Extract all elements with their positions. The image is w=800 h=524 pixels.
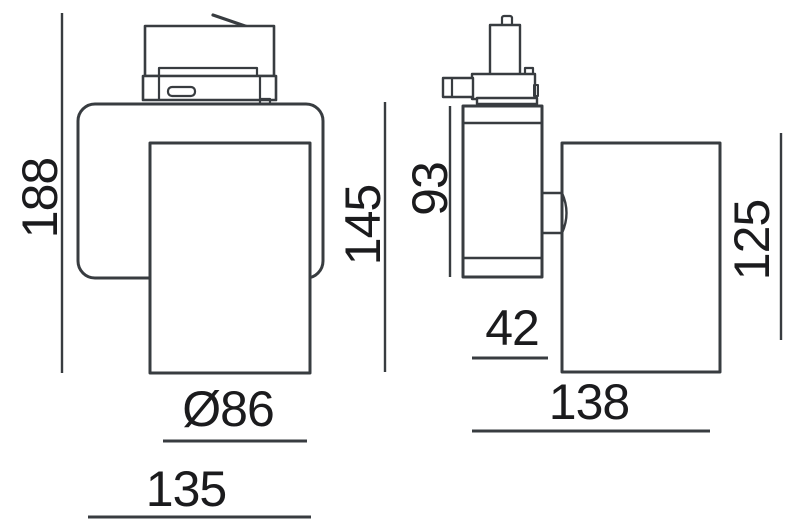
track-adapter-lower-box-front (143, 76, 276, 100)
dim-label-head-height-front: 145 (338, 185, 388, 265)
dim-label-overall-height: 188 (15, 158, 65, 238)
dim-label-head-height-side: 125 (727, 200, 777, 280)
pivot-joint-lines-side (542, 193, 562, 233)
body-side (463, 106, 542, 277)
lamp-head-side (562, 143, 720, 372)
lamp-head-front (150, 143, 310, 373)
dim-label-adapter-body-height: 93 (405, 162, 455, 216)
dim-label-head-length: 138 (549, 377, 629, 427)
dimension-drawing: 188 145 Ø86 135 93 125 42 138 (0, 0, 800, 524)
dim-label-body-depth: 42 (485, 303, 539, 353)
adapter-stem-side (490, 25, 520, 75)
adapter-base-plate-side (477, 98, 537, 104)
drawing-linework (0, 0, 800, 524)
dim-label-head-diameter: Ø86 (182, 384, 274, 434)
adapter-knob-side (443, 78, 473, 97)
dim-label-body-width: 135 (146, 464, 226, 514)
front-view (78, 15, 323, 373)
adapter-block-side (472, 74, 535, 99)
